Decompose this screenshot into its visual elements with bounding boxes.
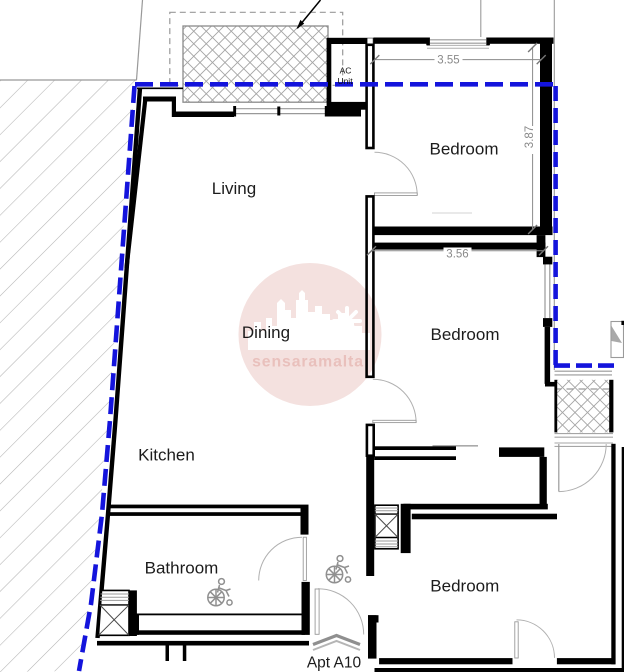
svg-text:Unit: Unit: [337, 76, 353, 86]
svg-text:Bathroom: Bathroom: [145, 559, 219, 578]
svg-text:Kitchen: Kitchen: [138, 446, 195, 465]
svg-text:Bedroom: Bedroom: [430, 577, 499, 596]
svg-text:sensaramalta: sensaramalta: [252, 354, 364, 371]
svg-text:Apt A10: Apt A10: [307, 655, 362, 672]
svg-text:Living: Living: [212, 179, 256, 198]
svg-text:3.56: 3.56: [446, 249, 468, 261]
svg-text:AC: AC: [340, 66, 352, 76]
svg-text:Bedroom: Bedroom: [430, 140, 499, 159]
svg-text:3.55: 3.55: [437, 55, 459, 67]
svg-text:3.87: 3.87: [524, 126, 536, 148]
svg-text:Bedroom: Bedroom: [431, 325, 500, 344]
